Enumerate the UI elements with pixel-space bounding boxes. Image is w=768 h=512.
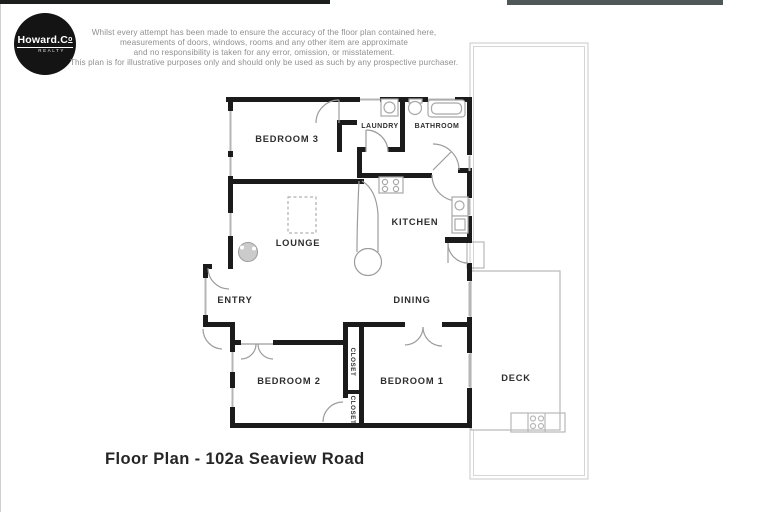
door-arcs bbox=[203, 100, 468, 422]
stove bbox=[379, 177, 403, 193]
room-label-bedroom3: BEDROOM 3 bbox=[255, 134, 319, 144]
laundry-door bbox=[366, 130, 388, 152]
deck-outline bbox=[467, 242, 560, 430]
bathroom-sink bbox=[409, 99, 423, 115]
room-label-closet-lower: CLOSET bbox=[349, 396, 356, 425]
bedroom2-wardrobe-door-right bbox=[258, 344, 273, 359]
laundry-tub bbox=[381, 99, 398, 116]
room-label-dining: DINING bbox=[393, 295, 430, 305]
fireplace bbox=[239, 243, 258, 262]
room-label-kitchen: KITCHEN bbox=[392, 217, 439, 227]
porch-door bbox=[203, 329, 222, 349]
room-label-laundry: LAUNDRY bbox=[361, 123, 398, 130]
bedroom1-door-right bbox=[423, 327, 442, 346]
kitchen-island bbox=[355, 181, 382, 276]
kitchen-bench bbox=[452, 216, 468, 233]
floor-plan: BEDROOM 3 LAUNDRY BATHROOM KITCHEN LOUNG… bbox=[0, 0, 768, 512]
floor-plan-caption: Floor Plan - 102a Seaview Road bbox=[105, 450, 365, 469]
room-label-deck: DECK bbox=[501, 373, 531, 383]
room-label-closet-upper: CLOSET bbox=[349, 348, 356, 377]
room-label-bedroom2: BEDROOM 2 bbox=[257, 376, 321, 386]
bathtub bbox=[428, 100, 465, 117]
bedroom3-door bbox=[316, 100, 339, 123]
closet-door bbox=[323, 402, 343, 422]
room-label-bedroom1: BEDROOM 1 bbox=[380, 376, 444, 386]
room-label-entry: ENTRY bbox=[217, 295, 252, 305]
lounge-skylight bbox=[288, 197, 316, 233]
deck-door bbox=[448, 243, 468, 263]
room-label-bathroom: BATHROOM bbox=[415, 123, 460, 130]
bedroom1-door-left bbox=[405, 327, 423, 345]
bedroom2-wardrobe-door-left bbox=[241, 344, 256, 359]
entry-door bbox=[208, 268, 229, 289]
kitchen-sink bbox=[452, 197, 468, 216]
room-label-lounge: LOUNGE bbox=[276, 238, 321, 248]
